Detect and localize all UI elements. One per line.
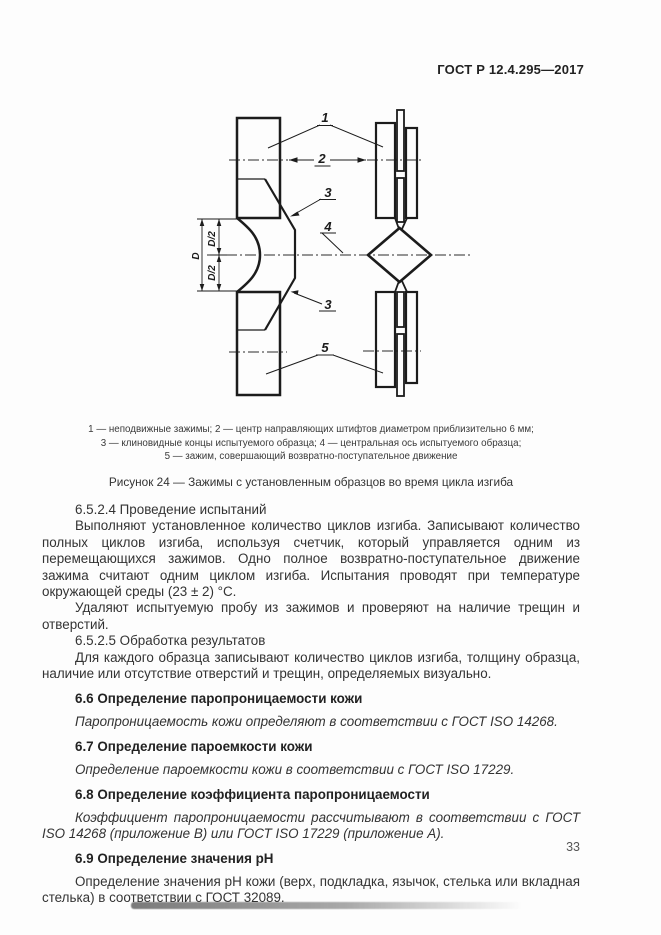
specimen-edge-bottom-b — [397, 334, 404, 396]
clause-68-heading: 6.8 Определение коэффициента паропроница… — [42, 787, 580, 803]
clause-67-heading: 6.7 Определение пароемкости кожи — [42, 739, 580, 755]
clamp-plate-top-left — [376, 123, 395, 218]
clause-68-para: Коэффициент паропроницаемости рассчитыва… — [42, 810, 580, 843]
clamp-plate-top-right — [406, 128, 417, 218]
arrow-3-bottom — [291, 290, 299, 294]
clause-66-para: Паропроницаемость кожи определяют в соот… — [42, 714, 580, 730]
clause-6525-para: Для каждого образца записывают количеств… — [42, 650, 580, 683]
d2-arrow-top — [217, 219, 222, 226]
label-2: 2 — [317, 151, 326, 166]
clause-6524-para2: Удаляют испытуемую пробу из зажимов и пр… — [42, 600, 580, 633]
specimen-edge-top-b — [397, 178, 404, 222]
figure-24-diagram: 1 2 3 4 3 5 D D/2 D/2 — [170, 95, 500, 407]
document-page: ГОСТ Р 12.4.295—2017 — [0, 0, 661, 935]
right-assembly — [368, 110, 431, 396]
clause-6524-title: 6.5.2.4 Проведение испытаний — [42, 502, 580, 518]
fixed-clamp-top — [237, 118, 280, 218]
label-4: 4 — [323, 219, 332, 234]
clamp-plate-bottom-left — [376, 292, 395, 387]
moving-clamp-bottom — [237, 292, 280, 395]
d2-arrow-mid-upper — [217, 248, 222, 255]
clause-6525-title: 6.5.2.5 Обработка результатов — [42, 633, 580, 649]
dimension-2 — [289, 148, 366, 164]
page-number: 33 — [42, 840, 580, 854]
leader-4 — [320, 233, 343, 253]
legend-line-3: 5 — зажим, совершающий возвратно-поступа… — [42, 450, 580, 464]
leader-1 — [268, 125, 383, 148]
legend-line-1: 1 — неподвижные зажимы; 2 — центр направ… — [42, 423, 580, 437]
legend-line-2: 3 — клиновидные концы испытуемого образц… — [42, 437, 580, 451]
dim-label-d: D — [191, 252, 202, 259]
figure-caption: Рисунок 24 — Зажимы с установленным обра… — [42, 475, 580, 489]
document-title: ГОСТ Р 12.4.295—2017 — [42, 62, 584, 77]
scan-artifact — [131, 902, 523, 909]
clause-66-heading: 6.6 Определение паропроницаемости кожи — [42, 691, 580, 707]
leader-3-top — [293, 199, 336, 215]
label-1: 1 — [321, 110, 328, 125]
leader-5 — [266, 355, 383, 374]
figure-legend: 1 — неподвижные зажимы; 2 — центр направ… — [42, 423, 580, 464]
center-lines — [207, 160, 472, 352]
specimen-edge-top-a — [397, 110, 404, 171]
clause-6524-para: Выполняют установленное количество цикло… — [42, 518, 580, 600]
d-arrow-bottom — [200, 284, 205, 291]
dim-label-d2-bottom: D/2 — [207, 265, 218, 281]
funnel-bottom — [395, 281, 407, 292]
label-5: 5 — [321, 340, 329, 355]
dim2-arrow-right — [358, 157, 367, 163]
clause-67-para: Определение пароемкости кожи в соответст… — [42, 762, 580, 778]
specimen-edge-bottom-a — [397, 292, 404, 327]
label-3-bottom: 3 — [324, 297, 332, 312]
d2-arrow-bottom — [217, 284, 222, 291]
d-arrow-top — [200, 219, 205, 226]
clamp-plate-bottom-right — [406, 292, 417, 383]
d2-arrow-mid-lower — [217, 255, 222, 262]
dim-label-d2-top: D/2 — [207, 231, 218, 247]
label-3-top: 3 — [324, 185, 332, 200]
dim2-arrow-left — [289, 157, 298, 163]
